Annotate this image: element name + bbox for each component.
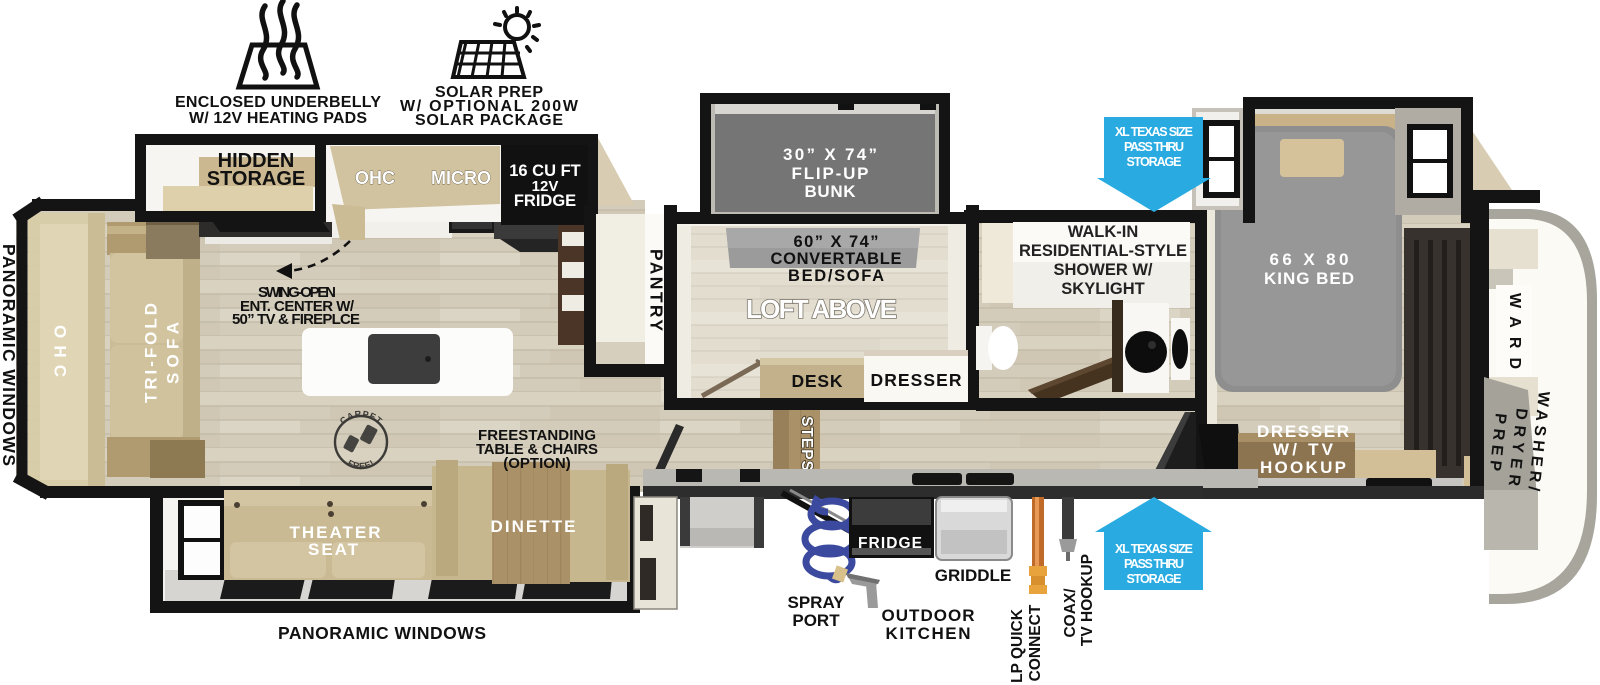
svg-text:FLIP-UP: FLIP-UP (792, 164, 869, 183)
svg-text:MICRO: MICRO (431, 168, 491, 188)
svg-text:LOFT ABOVE: LOFT ABOVE (746, 294, 898, 324)
svg-text:DRESSER: DRESSER (871, 370, 962, 390)
svg-text:60” X 74”: 60” X 74” (794, 233, 879, 251)
svg-text:PORT: PORT (792, 611, 840, 630)
svg-text:DESK: DESK (792, 371, 843, 391)
svg-text:W/ 12V HEATING PADS: W/ 12V HEATING PADS (189, 110, 367, 127)
svg-text:PANORAMIC WINDOWS: PANORAMIC WINDOWS (0, 244, 19, 466)
svg-text:WALK-IN: WALK-IN (1068, 223, 1139, 241)
svg-text:TV HOOKUP: TV HOOKUP (1079, 554, 1096, 646)
svg-text:XL TEXAS SIZE: XL TEXAS SIZE (1115, 542, 1193, 556)
svg-text:STORAGE: STORAGE (207, 168, 306, 190)
svg-text:SPRAY: SPRAY (787, 593, 845, 612)
svg-text:STEPS: STEPS (798, 416, 815, 472)
svg-text:XL TEXAS SIZE: XL TEXAS SIZE (1115, 125, 1193, 139)
svg-text:PASS THRU: PASS THRU (1124, 557, 1184, 571)
svg-text:BED/SOFA: BED/SOFA (788, 267, 884, 285)
svg-text:RESIDENTIAL-STYLE: RESIDENTIAL-STYLE (1019, 242, 1187, 260)
svg-text:ENCLOSED UNDERBELLY: ENCLOSED UNDERBELLY (175, 94, 381, 111)
svg-text:CONNECT: CONNECT (1027, 604, 1044, 681)
svg-text:30” X 74”: 30” X 74” (783, 145, 877, 164)
svg-text:LP QUICK: LP QUICK (1009, 608, 1026, 683)
svg-text:BUNK: BUNK (805, 182, 857, 201)
svg-text:FRIDGE: FRIDGE (514, 192, 576, 210)
svg-text:PASS THRU: PASS THRU (1124, 140, 1184, 154)
svg-text:STORAGE: STORAGE (1127, 572, 1182, 586)
svg-text:FRIDGE: FRIDGE (858, 535, 922, 552)
svg-text:SHOWER W/: SHOWER W/ (1054, 261, 1153, 279)
svg-text:PANORAMIC WINDOWS: PANORAMIC WINDOWS (278, 623, 486, 643)
svg-text:STORAGE: STORAGE (1127, 155, 1182, 169)
svg-text:W/ TV: W/ TV (1273, 440, 1334, 459)
svg-text:CONVERTABLE: CONVERTABLE (771, 250, 902, 268)
svg-text:KING BED: KING BED (1264, 269, 1354, 288)
svg-text:GRIDDLE: GRIDDLE (935, 566, 1012, 585)
svg-text:SOLAR PACKAGE: SOLAR PACKAGE (415, 112, 563, 129)
svg-text:OHC: OHC (51, 325, 70, 377)
svg-text:(OPTION): (OPTION) (503, 455, 571, 472)
svg-text:50” TV & FIREPLCE: 50” TV & FIREPLCE (232, 311, 360, 328)
svg-text:SKYLIGHT: SKYLIGHT (1061, 280, 1144, 298)
svg-text:COAX/: COAX/ (1062, 588, 1079, 638)
svg-text:OHC: OHC (355, 168, 395, 188)
svg-text:OUTDOOR: OUTDOOR (882, 606, 975, 625)
